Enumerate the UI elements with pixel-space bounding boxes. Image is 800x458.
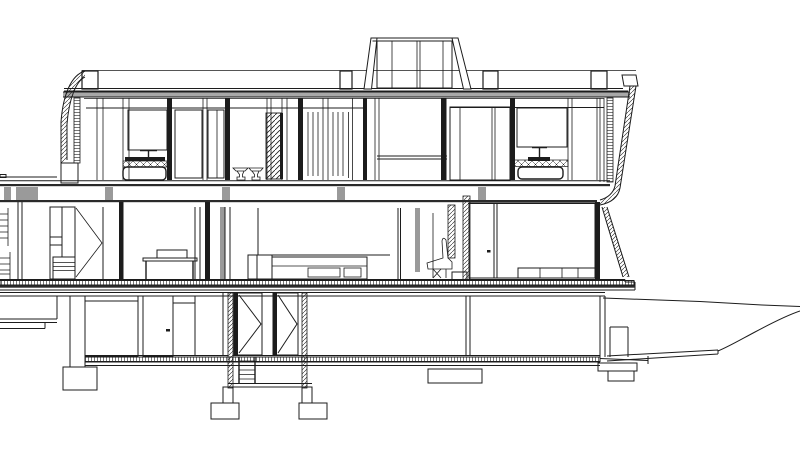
stair-wall-left	[228, 293, 233, 388]
cut-wall-right	[595, 202, 600, 279]
stair-wall-right	[302, 293, 307, 388]
door-handle	[166, 329, 170, 332]
slab-band-bottom	[0, 200, 597, 202]
parapet-cap	[622, 75, 638, 86]
basin-edge	[123, 161, 167, 167]
ground-slab-hatch	[0, 281, 634, 286]
right-wall-liner	[607, 98, 613, 182]
ground-slab-core	[0, 286, 635, 288]
architectural-section-drawing	[0, 0, 800, 458]
left-wall-liner	[74, 98, 80, 163]
slab-band-top	[0, 184, 610, 186]
cut-wall-left	[119, 202, 124, 279]
section-canvas	[0, 0, 800, 458]
basement-slab-hatch	[85, 357, 600, 362]
flue	[415, 208, 420, 272]
roof-fascia	[63, 92, 630, 97]
counter	[125, 157, 165, 161]
window-handle	[487, 250, 491, 253]
louvered-panel	[266, 113, 283, 179]
basin-edge	[513, 160, 568, 167]
